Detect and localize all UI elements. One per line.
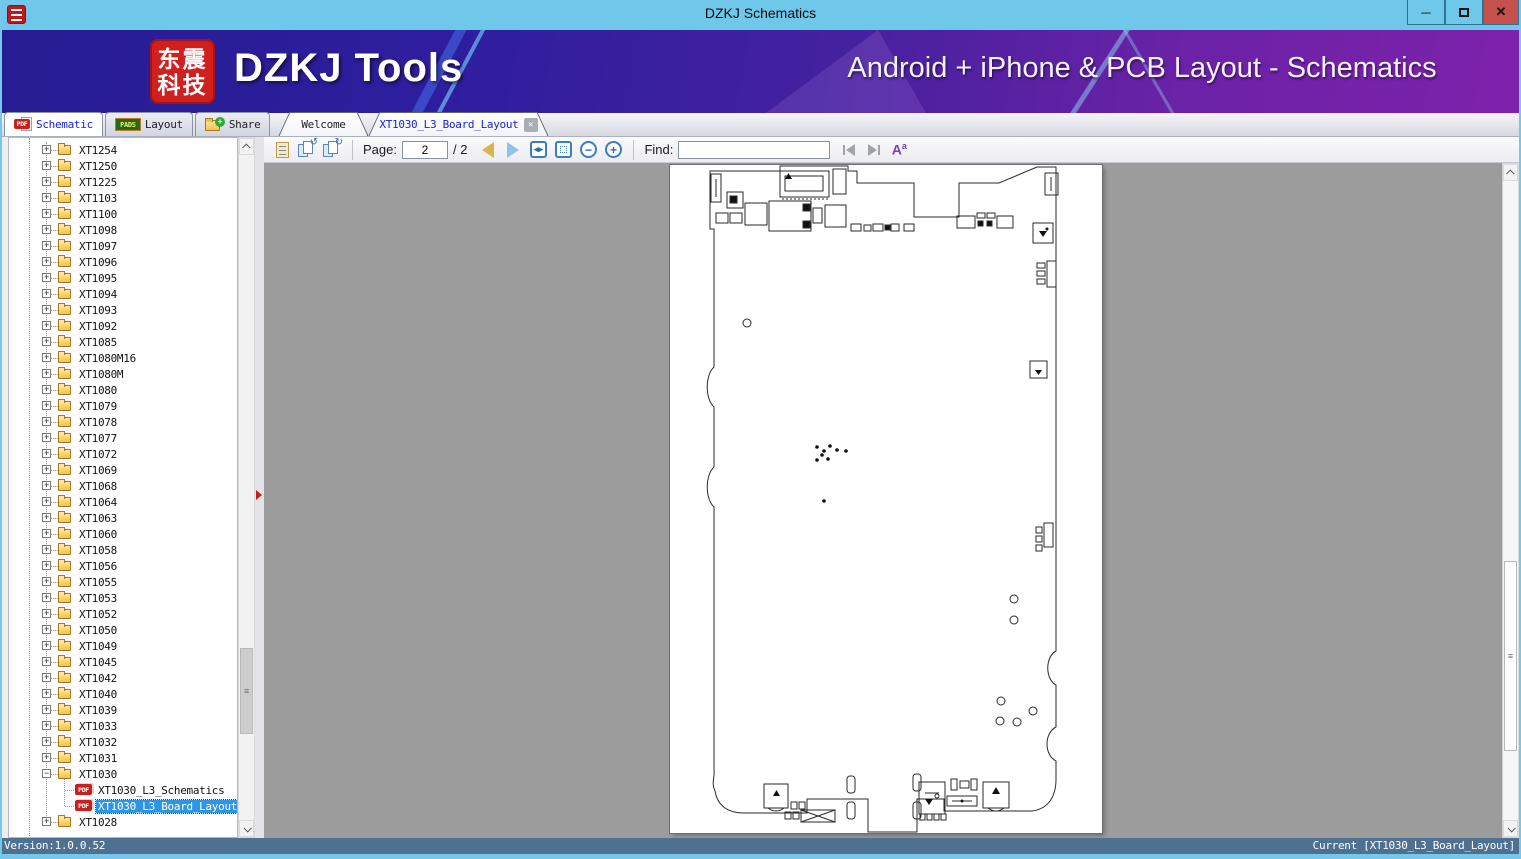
tree-item[interactable]: +XT1077 <box>9 430 237 446</box>
tree-item-label: XT1063 <box>77 512 119 525</box>
zoom-in-button[interactable]: + <box>603 140 623 160</box>
brand-title: DZKJ Tools <box>234 46 463 91</box>
title-bar: DZKJ Schematics ─ ✕ <box>2 0 1519 30</box>
tree-item[interactable]: +XT1049 <box>9 638 237 654</box>
expand-toggle-icon[interactable]: + <box>42 497 51 506</box>
expand-toggle-icon[interactable]: + <box>42 241 51 250</box>
tree-item[interactable]: PDFXT1030_L3_Schematics <box>9 782 237 798</box>
folder-icon <box>58 673 71 683</box>
tree-item[interactable]: +XT1080 <box>9 382 237 398</box>
rotate-right-icon: ↻ <box>323 141 341 158</box>
rotate-left-icon: ↺ <box>298 141 316 158</box>
page-number-input[interactable] <box>402 141 448 159</box>
expand-toggle-icon[interactable]: + <box>42 449 51 458</box>
tree-item[interactable]: +XT1225 <box>9 174 237 190</box>
tree-item[interactable]: +XT1068 <box>9 478 237 494</box>
viewer-scrollbar[interactable]: ≡ <box>1502 163 1519 838</box>
expand-toggle-icon[interactable]: + <box>42 225 51 234</box>
scroll-down-button[interactable] <box>1503 820 1518 837</box>
tree-item[interactable]: +XT1053 <box>9 590 237 606</box>
viewer-pane: ↺ ↻ Page: / 2 ◂▸ − + Find: Aa <box>264 137 1519 838</box>
folder-icon <box>58 289 71 299</box>
previous-page-button[interactable] <box>478 140 498 160</box>
tree-item-label: XT1052 <box>77 608 119 621</box>
tree-item-label: XT1225 <box>77 176 119 189</box>
tree-item-label: XT1254 <box>77 144 119 157</box>
folder-icon <box>58 337 71 347</box>
fit-page-icon <box>555 141 572 158</box>
folder-icon <box>58 273 71 283</box>
tree-item[interactable]: +XT1097 <box>9 238 237 254</box>
folder-icon <box>58 449 71 459</box>
folder-icon <box>58 305 71 315</box>
tree-item[interactable]: +XT1063 <box>9 510 237 526</box>
expand-toggle-icon[interactable]: + <box>42 561 51 570</box>
match-case-button[interactable]: Aa <box>889 140 909 160</box>
tree-item[interactable]: +XT1056 <box>9 558 237 574</box>
tree-item-label: XT1033 <box>77 720 119 733</box>
tree-item[interactable]: +XT1103 <box>9 190 237 206</box>
scroll-up-button[interactable] <box>1503 164 1518 181</box>
pdf-icon: PDF <box>14 117 32 132</box>
tree-item-label: XT1077 <box>77 432 119 445</box>
folder-icon <box>58 369 71 379</box>
fit-width-button[interactable]: ◂▸ <box>528 140 548 160</box>
folder-icon <box>58 481 71 491</box>
tree-item[interactable]: +XT1100 <box>9 206 237 222</box>
tree-scrollbar-thumb[interactable]: ≡ <box>240 648 253 734</box>
tab-layout-label: Layout <box>145 118 183 131</box>
tree-item-label: XT1094 <box>77 288 119 301</box>
expand-toggle-icon[interactable]: + <box>42 369 51 378</box>
zoom-in-icon: + <box>605 141 622 158</box>
toolbar-separator <box>633 140 634 160</box>
tree-item-label: XT1055 <box>77 576 119 589</box>
viewer-scrollbar-thumb[interactable]: ≡ <box>1504 561 1517 751</box>
header-banner: 东震 科技 DZKJ Tools Android + iPhone & PCB … <box>2 30 1519 113</box>
tree-item[interactable]: +XT1042 <box>9 670 237 686</box>
tree-item-label: XT1050 <box>77 624 119 637</box>
doc-tab-board-layout-label: XT1030_L3_Board_Layout <box>379 118 518 131</box>
expand-toggle-icon[interactable]: + <box>42 641 51 650</box>
schematic-tree-panel: +XT1254+XT1250+XT1225+XT1103+XT1100+XT10… <box>2 137 264 838</box>
tree-item-label: XT1069 <box>77 464 119 477</box>
header-tagline: Android + iPhone & PCB Layout - Schemati… <box>782 52 1502 85</box>
folder-icon <box>58 241 71 251</box>
expand-toggle-icon[interactable]: + <box>42 753 51 762</box>
tree-item[interactable]: +XT1058 <box>9 542 237 558</box>
expand-toggle-icon[interactable]: + <box>42 401 51 410</box>
folder-icon <box>58 417 71 427</box>
expand-toggle-icon[interactable]: + <box>42 673 51 682</box>
pdf-page <box>670 165 1102 833</box>
tree-item[interactable]: +XT1080M <box>9 366 237 382</box>
chevron-down-icon <box>243 824 251 832</box>
logo-text-line1: 东震 <box>158 46 208 72</box>
expand-toggle-icon[interactable]: + <box>42 657 51 666</box>
tree-item-label: XT1040 <box>77 688 119 701</box>
tree-item-label: XT1079 <box>77 400 119 413</box>
minimize-button[interactable]: ─ <box>1407 0 1445 25</box>
tab-schematic[interactable]: PDF Schematic <box>4 112 103 136</box>
tree-item-label: XT1064 <box>77 496 119 509</box>
splitter-collapse-icon[interactable] <box>256 490 262 500</box>
rotate-right-button[interactable]: ↻ <box>322 140 342 160</box>
tree-item-label: XT1092 <box>77 320 119 333</box>
status-bar: Version:1.0.0.52 Current [XT1030_L3_Boar… <box>2 838 1519 854</box>
tree-item[interactable]: +XT1096 <box>9 254 237 270</box>
minimize-icon: ─ <box>1421 5 1430 20</box>
folder-icon <box>58 353 71 363</box>
maximize-icon <box>1459 8 1469 17</box>
folder-icon <box>58 705 71 715</box>
doc-tab-welcome[interactable]: Welcome <box>278 112 368 136</box>
folder-icon <box>58 321 71 331</box>
tree-item[interactable]: +XT1094 <box>9 286 237 302</box>
expand-toggle-icon[interactable]: + <box>42 273 51 282</box>
tree-item[interactable]: +XT1079 <box>9 398 237 414</box>
doc-tab-board-layout[interactable]: XT1030_L3_Board_Layout ✕ <box>368 112 548 136</box>
expand-toggle-icon[interactable]: + <box>42 321 51 330</box>
expand-toggle-icon[interactable]: + <box>42 305 51 314</box>
tree-item[interactable]: +XT1033 <box>9 718 237 734</box>
tree-item[interactable]: +XT1052 <box>9 606 237 622</box>
tree-item[interactable]: +XT1045 <box>9 654 237 670</box>
tab-layout[interactable]: PADS Layout <box>105 112 193 136</box>
maximize-button[interactable] <box>1445 0 1483 25</box>
doc-tab-welcome-label: Welcome <box>301 118 345 131</box>
tree-item-label: XT1078 <box>77 416 119 429</box>
tree-item[interactable]: +XT1040 <box>9 686 237 702</box>
tab-strip: PDF Schematic PADS Layout + Share Welcom… <box>2 113 1519 137</box>
expand-toggle-icon[interactable]: + <box>42 529 51 538</box>
tree-item-label: XT1030 <box>77 768 119 781</box>
tree-item-label: XT1049 <box>77 640 119 653</box>
fit-page-button[interactable] <box>553 140 573 160</box>
tree-item-label: XT1058 <box>77 544 119 557</box>
tree-item[interactable]: +XT1078 <box>9 414 237 430</box>
expand-toggle-icon[interactable]: + <box>42 193 51 202</box>
expand-toggle-icon[interactable]: + <box>42 433 51 442</box>
folder-icon <box>58 529 71 539</box>
tree-item[interactable]: +XT1072 <box>9 446 237 462</box>
tree-item[interactable]: +XT1064 <box>9 494 237 510</box>
tab-share[interactable]: + Share <box>195 112 271 136</box>
tree-item[interactable]: +XT1095 <box>9 270 237 286</box>
folder-icon <box>58 465 71 475</box>
tree-item-label: XT1080M <box>77 368 125 381</box>
chevron-up-icon <box>242 143 250 151</box>
expand-toggle-icon[interactable]: + <box>42 385 51 394</box>
tree-rows: +XT1254+XT1250+XT1225+XT1103+XT1100+XT10… <box>9 138 237 830</box>
tree-item-label: XT1093 <box>77 304 119 317</box>
tree-item[interactable]: +XT1028 <box>9 814 237 830</box>
window-title: DZKJ Schematics <box>2 5 1519 21</box>
chevron-up-icon <box>1506 169 1514 177</box>
folder-icon <box>58 689 71 699</box>
application-window: DZKJ Schematics ─ ✕ 东震 科技 DZKJ Tools And… <box>0 0 1521 859</box>
folder-icon <box>58 641 71 651</box>
folder-icon <box>58 769 71 779</box>
expand-toggle-icon[interactable]: + <box>42 337 51 346</box>
pcb-board-layout-drawing <box>670 165 1102 833</box>
folder-icon <box>58 593 71 603</box>
folder-icon <box>58 625 71 635</box>
folder-icon <box>58 753 71 763</box>
next-page-icon <box>507 142 519 158</box>
tree-item-label: XT1053 <box>77 592 119 605</box>
pdf-toolbar: ↺ ↻ Page: / 2 ◂▸ − + Find: Aa <box>264 137 1519 163</box>
panel-splitter[interactable] <box>255 137 264 838</box>
tree-item-label: XT1096 <box>77 256 119 269</box>
rotate-left-button[interactable]: ↺ <box>297 140 317 160</box>
tree-item-label: XT1030_L3_Board_Layout <box>96 800 238 813</box>
tree-item-label: XT1098 <box>77 224 119 237</box>
tree-item-label: XT1095 <box>77 272 119 285</box>
find-next-button[interactable] <box>864 140 884 160</box>
tree-item[interactable]: +XT1060 <box>9 526 237 542</box>
tree-item[interactable]: +XT1032 <box>9 734 237 750</box>
tree-item[interactable]: +XT1080M16 <box>9 350 237 366</box>
expand-toggle-icon[interactable]: + <box>42 545 51 554</box>
expand-toggle-icon[interactable]: + <box>42 209 51 218</box>
folder-icon <box>58 145 71 155</box>
expand-toggle-icon[interactable]: − <box>42 769 51 778</box>
expand-toggle-icon[interactable]: + <box>42 353 51 362</box>
folder-icon <box>58 545 71 555</box>
expand-toggle-icon[interactable]: + <box>42 481 51 490</box>
tree-item-label: XT1085 <box>77 336 119 349</box>
tree-item-label: XT1097 <box>77 240 119 253</box>
folder-icon <box>58 609 71 619</box>
folder-icon <box>58 401 71 411</box>
tree-item-label: XT1032 <box>77 736 119 749</box>
expand-toggle-icon[interactable]: + <box>42 689 51 698</box>
scroll-down-button[interactable] <box>239 820 254 837</box>
grip-icon: ≡ <box>244 689 249 693</box>
tab-schematic-label: Schematic <box>36 118 93 131</box>
tree-item[interactable]: +XT1093 <box>9 302 237 318</box>
folder-icon <box>58 721 71 731</box>
folder-icon <box>58 513 71 523</box>
tree-item-label: XT1056 <box>77 560 119 573</box>
expand-toggle-icon[interactable]: + <box>42 289 51 298</box>
close-icon: ✕ <box>1496 4 1507 20</box>
expand-toggle-icon[interactable]: + <box>42 705 51 714</box>
tree-item-label: XT1250 <box>77 160 119 173</box>
expand-toggle-icon[interactable]: + <box>42 145 51 154</box>
tree-item[interactable]: PDFXT1030_L3_Board_Layout <box>9 798 237 814</box>
folder-icon <box>58 497 71 507</box>
tree-item-label: XT1045 <box>77 656 119 669</box>
tree-item-label: XT1080M16 <box>77 352 138 365</box>
folder-icon <box>58 193 71 203</box>
tree-item-label: XT1031 <box>77 752 119 765</box>
tree-item-label: XT1042 <box>77 672 119 685</box>
expand-toggle-icon[interactable]: + <box>42 465 51 474</box>
find-label: Find: <box>644 142 673 157</box>
expand-toggle-icon[interactable]: + <box>42 721 51 730</box>
page-label: Page: <box>363 142 397 157</box>
tree-scrollbar[interactable]: ≡ <box>238 137 255 838</box>
previous-page-icon <box>482 142 494 158</box>
tree-item-label: XT1030_L3_Schematics <box>96 784 226 797</box>
model-tree: +XT1254+XT1250+XT1225+XT1103+XT1100+XT10… <box>8 137 238 838</box>
logo-text-line2: 科技 <box>158 72 208 98</box>
tree-item-label: XT1060 <box>77 528 119 541</box>
find-previous-icon <box>843 144 855 156</box>
folder-icon <box>58 209 71 219</box>
expand-toggle-icon[interactable]: + <box>42 737 51 746</box>
grip-icon: ≡ <box>1508 654 1513 658</box>
tree-item[interactable]: +XT1069 <box>9 462 237 478</box>
tree-item-label: XT1072 <box>77 448 119 461</box>
find-previous-button[interactable] <box>839 140 859 160</box>
zoom-out-icon: − <box>580 141 597 158</box>
tree-item[interactable]: +XT1085 <box>9 334 237 350</box>
pdf-icon: PDF <box>75 800 92 811</box>
close-button[interactable]: ✕ <box>1483 0 1519 25</box>
main-body: +XT1254+XT1250+XT1225+XT1103+XT1100+XT10… <box>2 137 1519 838</box>
folder-icon <box>58 577 71 587</box>
page-total: / 2 <box>453 142 467 157</box>
zoom-out-button[interactable]: − <box>578 140 598 160</box>
company-logo: 东震 科技 <box>150 39 215 104</box>
expand-toggle-icon[interactable]: + <box>42 417 51 426</box>
tree-item-label: XT1103 <box>77 192 119 205</box>
folder-icon <box>58 177 71 187</box>
tree-item[interactable]: −XT1030 <box>9 766 237 782</box>
scroll-up-button[interactable] <box>239 138 254 155</box>
tree-item-label: XT1028 <box>77 816 119 829</box>
chevron-down-icon <box>1507 824 1515 832</box>
folder-icon <box>58 225 71 235</box>
tree-item[interactable]: +XT1055 <box>9 574 237 590</box>
expand-toggle-icon[interactable]: + <box>42 609 51 618</box>
tree-item[interactable]: +XT1031 <box>9 750 237 766</box>
tree-item-label: XT1039 <box>77 704 119 717</box>
expand-toggle-icon[interactable]: + <box>42 513 51 522</box>
expand-toggle-icon[interactable]: + <box>42 177 51 186</box>
next-page-button[interactable] <box>503 140 523 160</box>
tab-share-label: Share <box>229 118 261 131</box>
pdf-icon: PDF <box>75 784 92 795</box>
toolbar-separator <box>352 140 353 160</box>
find-next-icon <box>868 144 880 156</box>
folder-icon <box>58 817 71 827</box>
folder-icon <box>58 737 71 747</box>
expand-toggle-icon[interactable]: + <box>42 593 51 602</box>
folder-icon <box>58 161 71 171</box>
tree-item[interactable]: +XT1050 <box>9 622 237 638</box>
folder-icon <box>58 433 71 443</box>
tree-item-label: XT1080 <box>77 384 119 397</box>
expand-toggle-icon[interactable]: + <box>42 817 51 826</box>
tree-item-label: XT1068 <box>77 480 119 493</box>
pdf-viewer[interactable]: ≡ <box>264 163 1519 838</box>
folder-icon <box>58 561 71 571</box>
pads-icon: PADS <box>115 118 141 131</box>
tree-item[interactable]: +XT1254 <box>9 142 237 158</box>
tree-item[interactable]: +XT1092 <box>9 318 237 334</box>
folder-icon <box>58 257 71 267</box>
copy-page-icon <box>276 142 289 158</box>
match-case-icon: Aa <box>892 141 907 158</box>
version-text: Version:1.0.0.52 <box>4 839 105 852</box>
expand-toggle-icon[interactable]: + <box>42 625 51 634</box>
share-icon: + <box>205 118 225 132</box>
folder-icon <box>58 385 71 395</box>
expand-toggle-icon[interactable]: + <box>42 577 51 586</box>
expand-toggle-icon[interactable]: + <box>42 257 51 266</box>
tree-item[interactable]: +XT1039 <box>9 702 237 718</box>
tree-item[interactable]: +XT1250 <box>9 158 237 174</box>
tree-item[interactable]: +XT1098 <box>9 222 237 238</box>
doc-tab-close-icon[interactable]: ✕ <box>524 118 538 132</box>
copy-page-button[interactable] <box>272 140 292 160</box>
current-document-text: Current [XT1030_L3_Board_Layout] <box>1313 839 1515 852</box>
folder-icon <box>58 657 71 667</box>
find-input[interactable] <box>678 141 830 159</box>
fit-width-icon: ◂▸ <box>530 141 547 158</box>
expand-toggle-icon[interactable]: + <box>42 161 51 170</box>
tree-item-label: XT1100 <box>77 208 119 221</box>
